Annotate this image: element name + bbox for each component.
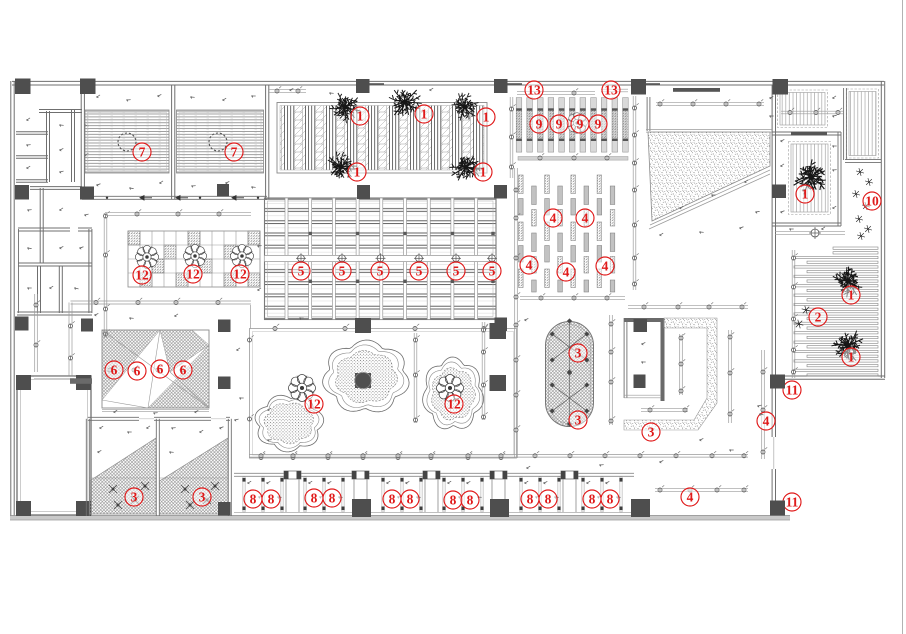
svg-text:4: 4	[687, 490, 694, 505]
svg-text:1: 1	[357, 109, 364, 124]
svg-text:1: 1	[354, 165, 361, 180]
svg-text:1: 1	[848, 288, 855, 303]
svg-text:5: 5	[339, 264, 346, 279]
svg-text:8: 8	[311, 491, 318, 506]
svg-text:12: 12	[307, 397, 321, 412]
svg-text:3: 3	[199, 490, 206, 505]
svg-text:8: 8	[450, 493, 457, 508]
svg-text:3: 3	[575, 346, 582, 361]
svg-text:4: 4	[602, 259, 609, 274]
svg-text:4: 4	[550, 211, 557, 226]
svg-text:5: 5	[377, 264, 384, 279]
svg-text:9: 9	[595, 117, 602, 132]
svg-text:12: 12	[233, 267, 247, 282]
svg-text:4: 4	[763, 414, 770, 429]
svg-text:3: 3	[648, 425, 655, 440]
svg-text:1: 1	[802, 187, 809, 202]
svg-text:1: 1	[483, 110, 490, 125]
svg-text:5: 5	[453, 264, 460, 279]
svg-text:5: 5	[298, 264, 305, 279]
svg-text:11: 11	[786, 495, 799, 510]
svg-text:8: 8	[467, 493, 474, 508]
svg-text:5: 5	[416, 264, 423, 279]
svg-text:5: 5	[489, 264, 496, 279]
svg-text:8: 8	[407, 492, 414, 507]
svg-text:3: 3	[131, 490, 138, 505]
svg-text:12: 12	[135, 268, 149, 283]
svg-text:12: 12	[186, 267, 200, 282]
svg-text:8: 8	[527, 492, 534, 507]
svg-text:6: 6	[111, 363, 118, 378]
svg-text:9: 9	[556, 117, 563, 132]
svg-text:1: 1	[480, 165, 487, 180]
svg-text:11: 11	[786, 383, 799, 398]
svg-text:9: 9	[536, 117, 543, 132]
svg-text:4: 4	[526, 258, 533, 273]
svg-text:6: 6	[134, 364, 141, 379]
svg-text:4: 4	[582, 211, 589, 226]
svg-text:1: 1	[848, 350, 855, 365]
svg-text:13: 13	[527, 83, 541, 98]
svg-text:8: 8	[589, 492, 596, 507]
svg-text:7: 7	[231, 145, 238, 160]
svg-text:6: 6	[180, 363, 187, 378]
svg-text:8: 8	[329, 491, 336, 506]
svg-text:8: 8	[250, 492, 257, 507]
svg-text:8: 8	[389, 492, 396, 507]
svg-text:1: 1	[421, 107, 428, 122]
svg-text:12: 12	[447, 397, 461, 412]
svg-text:3: 3	[575, 413, 582, 428]
svg-text:4: 4	[563, 265, 570, 280]
svg-text:6: 6	[157, 362, 164, 377]
svg-text:8: 8	[268, 492, 275, 507]
svg-text:2: 2	[815, 310, 822, 325]
svg-text:8: 8	[545, 492, 552, 507]
svg-text:13: 13	[604, 83, 618, 98]
svg-text:7: 7	[139, 145, 146, 160]
svg-text:9: 9	[577, 117, 584, 132]
svg-text:10: 10	[865, 194, 879, 209]
svg-text:8: 8	[607, 492, 614, 507]
